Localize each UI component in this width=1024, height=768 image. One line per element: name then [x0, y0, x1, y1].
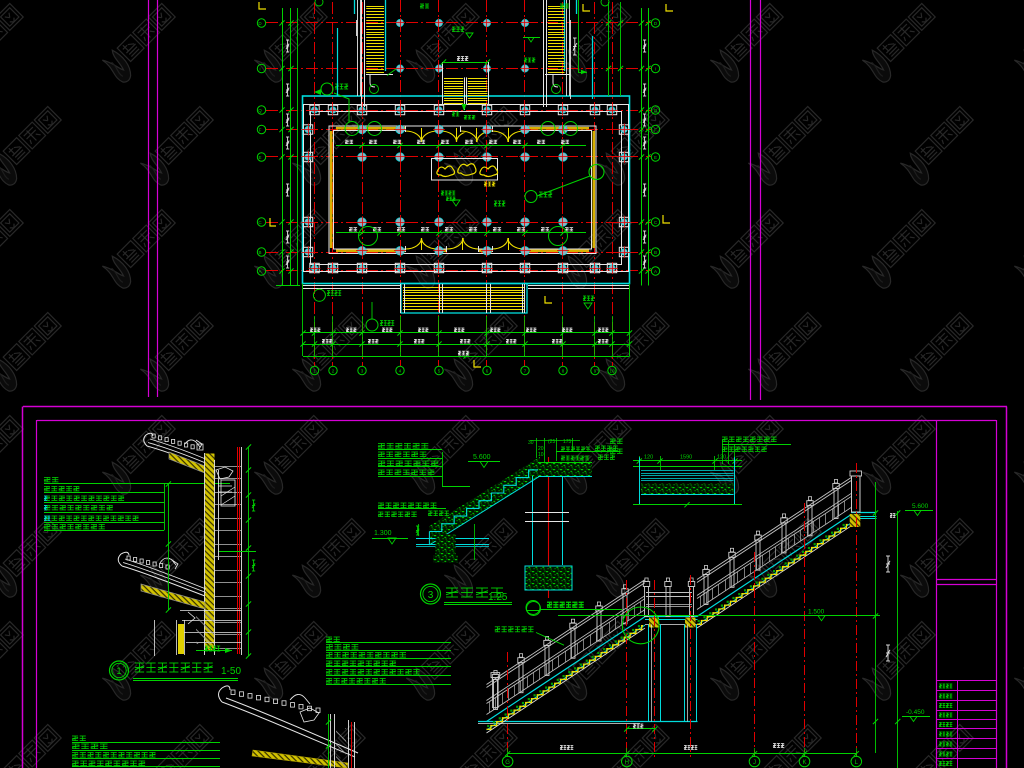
svg-text:10: 10: [538, 452, 544, 458]
svg-text:1: 1: [116, 666, 121, 676]
svg-text:F: F: [259, 128, 262, 133]
svg-text:E: E: [654, 155, 657, 160]
svg-text:A: A: [258, 269, 261, 274]
svg-text:5.600: 5.600: [473, 454, 491, 461]
svg-text:120: 120: [717, 455, 726, 461]
svg-text:B: B: [258, 250, 261, 255]
svg-text:A: A: [654, 269, 657, 274]
svg-text:1-50: 1-50: [221, 666, 241, 677]
svg-text:3: 3: [428, 590, 434, 601]
svg-text:E: E: [258, 155, 261, 160]
svg-text:J: J: [753, 760, 756, 766]
svg-text:H: H: [625, 760, 629, 766]
svg-text:120: 120: [644, 455, 653, 461]
svg-text:1590: 1590: [680, 455, 692, 461]
svg-text:Q: Q: [654, 108, 658, 113]
svg-text:K: K: [802, 760, 806, 766]
svg-text:Q: Q: [258, 108, 262, 113]
svg-text:1.500: 1.500: [808, 609, 825, 616]
svg-text:1:25: 1:25: [488, 592, 508, 603]
svg-text:(25: (25: [548, 439, 555, 445]
svg-text:I: I: [655, 67, 656, 72]
svg-text:-0.450: -0.450: [906, 709, 925, 716]
svg-text:10: 10: [609, 369, 615, 374]
svg-text:30: 30: [528, 440, 534, 446]
svg-text:B: B: [654, 250, 657, 255]
svg-text:G: G: [505, 760, 510, 766]
svg-text:F: F: [654, 128, 657, 133]
svg-text:175: 175: [563, 439, 572, 445]
svg-text:1.300: 1.300: [374, 530, 392, 537]
svg-text:5.600: 5.600: [912, 503, 929, 510]
svg-text:I: I: [259, 67, 260, 72]
